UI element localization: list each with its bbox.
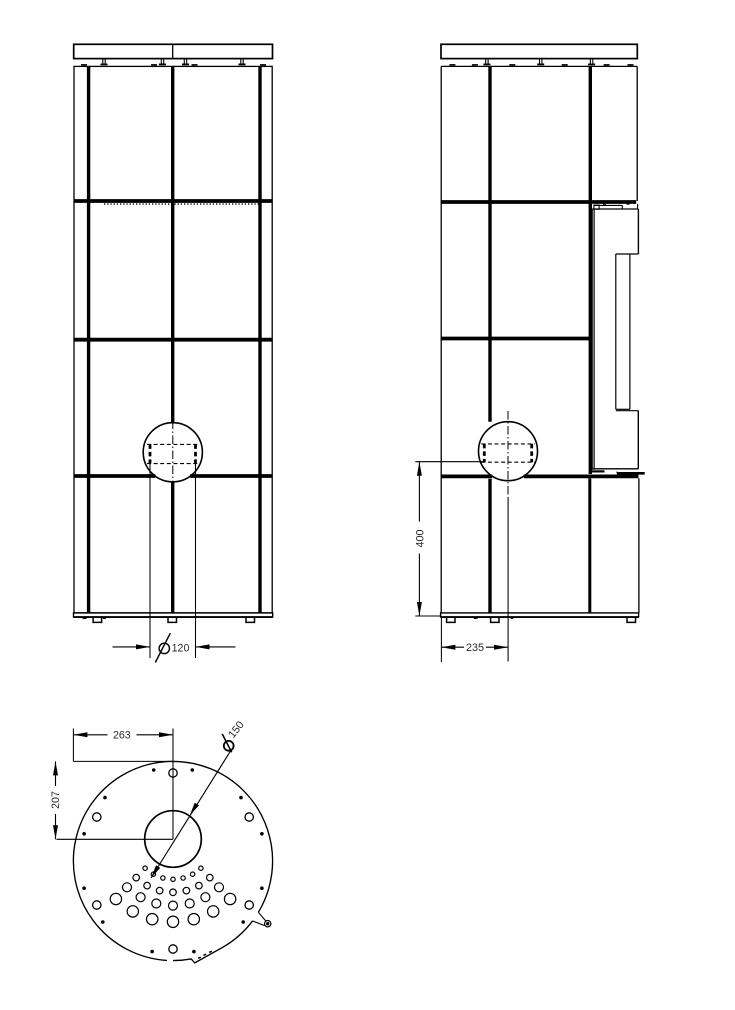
- svg-text:235: 235: [466, 642, 484, 654]
- svg-text:400: 400: [414, 529, 426, 547]
- svg-text:120: 120: [172, 643, 190, 655]
- svg-text:263: 263: [113, 730, 131, 742]
- svg-text:207: 207: [50, 791, 62, 809]
